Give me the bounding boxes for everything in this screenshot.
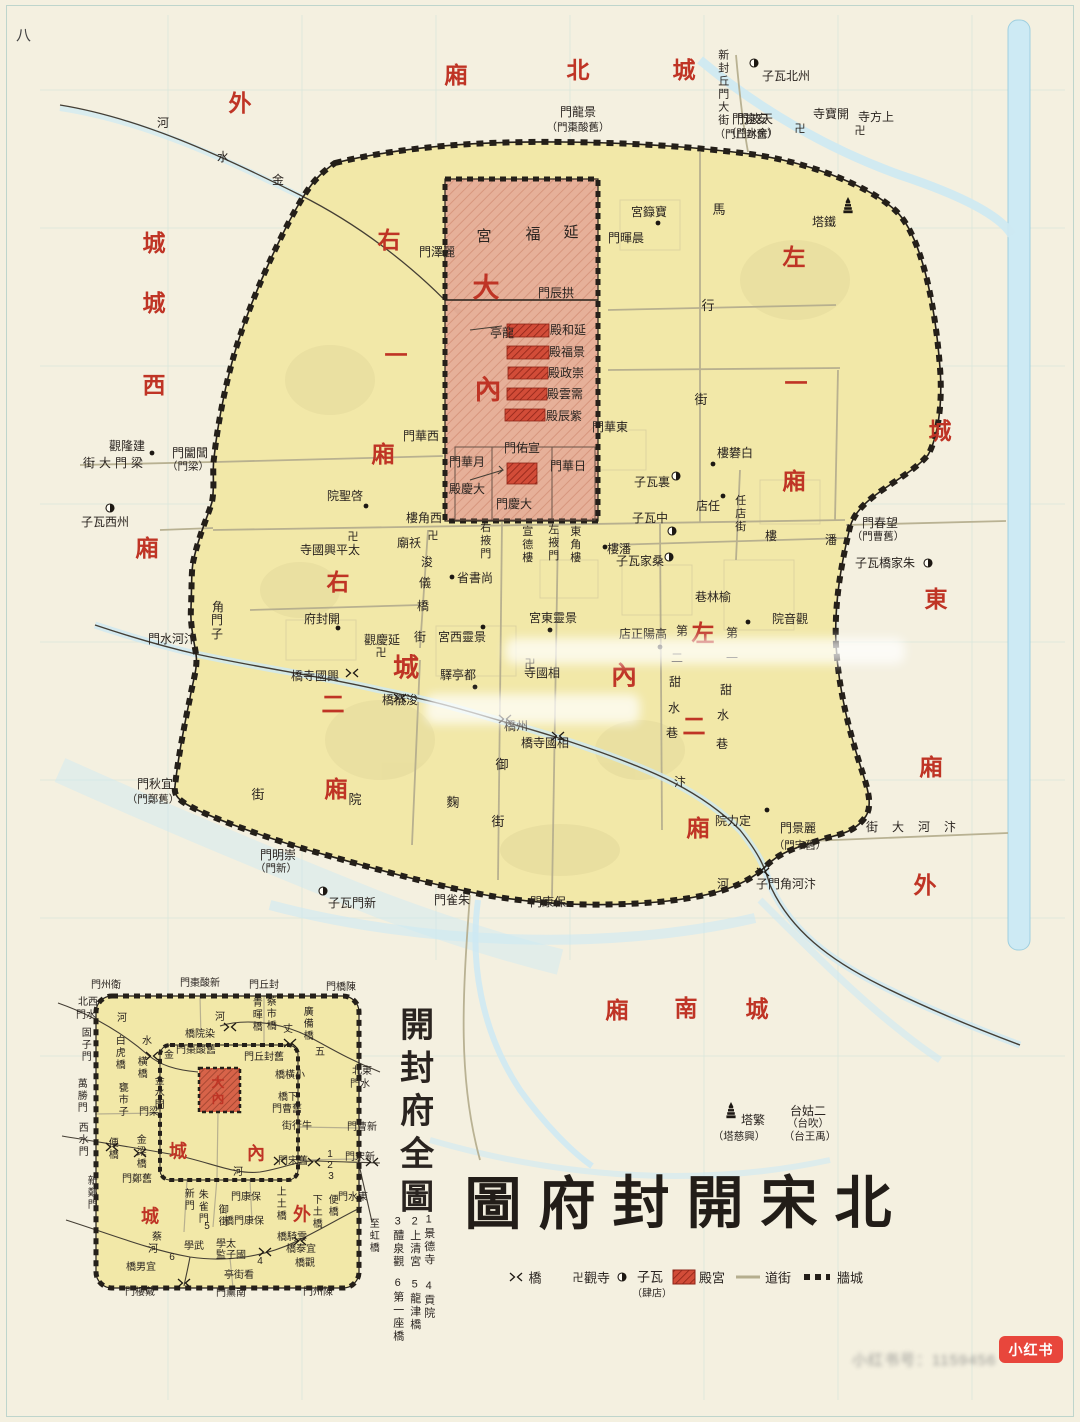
map-label: 樓 (765, 530, 777, 542)
legend-label: 觀寺 (584, 1268, 610, 1287)
map-label: 街大門梁 (83, 457, 147, 469)
map-label: 北 (835, 1174, 892, 1233)
svg-text:卍: 卍 (376, 646, 387, 659)
map-label: 內 (211, 1092, 224, 1106)
map-label: 城 (929, 420, 952, 444)
map-label: 白虎橋 (113, 1035, 123, 1071)
map-label: 寺國興平太 (300, 544, 360, 556)
legend-label: 橋 (528, 1268, 541, 1287)
map-label: 新封丘門大街 (716, 49, 727, 127)
map-label: 內 (611, 662, 637, 689)
map-label: 子瓦中 (632, 512, 668, 524)
map-label: 朱雀門 (196, 1189, 206, 1225)
map-label: 寺寶開 (813, 108, 849, 120)
map-label: 廂 (920, 756, 943, 780)
svg-text:卍: 卍 (573, 1271, 584, 1284)
map-label: 東 (925, 588, 948, 612)
map-label: 5 (204, 1222, 210, 1232)
map-label: 西水門 (76, 1122, 86, 1158)
map-label: 門遠安 (732, 113, 768, 125)
map-label: 內 (475, 376, 502, 404)
map-label: 街 (694, 393, 707, 407)
map-label: 門樓戴 (125, 1288, 155, 1298)
map-label: 廂 (687, 817, 710, 841)
map-label: 蔡市橋 (264, 996, 274, 1032)
map-label: 甜 (669, 676, 681, 688)
map-label: 河 (233, 1168, 243, 1178)
map-label: 橋儀浚 (382, 694, 418, 706)
svg-text:卍: 卍 (428, 529, 439, 542)
map-label: 門龍景 (560, 106, 596, 118)
map-label: 宋 (761, 1174, 818, 1233)
svg-text:卍: 卍 (855, 124, 866, 137)
map-label: 6 (169, 1253, 175, 1263)
map-label: 浚 (421, 556, 433, 568)
map-label: 廟祅 (397, 537, 421, 549)
map-label: 水 (668, 702, 680, 714)
map-label: 外 (229, 92, 252, 116)
map-label: 城 (169, 1143, 187, 1162)
map-label: 儀 (419, 577, 431, 589)
map-label: 門州陳 (303, 1288, 333, 1298)
map-label: 金 (164, 1051, 174, 1061)
map-label: （門新） (255, 864, 297, 875)
map-label: 門水 (350, 1080, 370, 1090)
map-label: 1 (327, 1150, 333, 1160)
map-label: 右 (378, 229, 401, 253)
map-label: 街行牛 (282, 1122, 312, 1132)
svg-text:卍: 卍 (795, 122, 806, 135)
map-label: 門秋宜 (137, 778, 173, 790)
map-label: 4貢院 (422, 1280, 433, 1320)
map-label: 金梁橋 (134, 1134, 144, 1170)
map-label: 水 (217, 151, 229, 163)
map-label: 便橋 (326, 1194, 336, 1218)
map-label: 河 (117, 1014, 127, 1024)
map-label: 圖 (465, 1175, 522, 1234)
map-label: 院 (348, 793, 361, 807)
map-label: 河 (215, 1013, 225, 1023)
map-label: 城 (393, 654, 419, 681)
map-label: 二 (683, 715, 706, 739)
map-label: 門辰拱 (538, 287, 574, 299)
map-label: 甕市子 (116, 1082, 126, 1118)
map-label: 丈 (283, 1025, 293, 1035)
map-label: 門州衛 (91, 981, 121, 991)
map-label: 大 (473, 274, 500, 302)
map-label: 角 (212, 601, 224, 613)
map-label: 開 (687, 1174, 744, 1233)
map-label: 廂 (606, 999, 629, 1023)
map-label: 橋騎雲 (277, 1233, 307, 1243)
map-label: 亭龍 (490, 327, 514, 339)
map-label: （門棗酸舊） (547, 123, 610, 134)
map-label: 2上清宮 (408, 1216, 419, 1269)
map-label: 樓礬白 (717, 447, 753, 459)
legend-sublabel: （肆店） (632, 1285, 672, 1300)
map-label: 院聖啓 (327, 490, 363, 502)
map-label: 門華西 (403, 430, 439, 442)
map-label: 金 (272, 174, 284, 186)
map-label: 學武 (184, 1242, 204, 1252)
map-label: 左掖門 (546, 524, 557, 563)
map-label: 學太 (216, 1240, 236, 1250)
map-page: 卍卍卍卍卍卍 卍 廂北城外城城西廂右一廂左一廂大內右二廂城內左二廂城東廂外廂南城… (0, 0, 1080, 1422)
map-label: 新門 (182, 1188, 192, 1212)
map-label: 城 (673, 59, 696, 83)
map-label: 福 (525, 227, 540, 243)
map-label: 子瓦裏 (634, 476, 670, 488)
map-label: 外 (293, 1206, 311, 1225)
map-label: 廣備橋 (301, 1006, 311, 1042)
map-label: 內 (247, 1145, 265, 1164)
map-label: 子瓦西州 (81, 516, 129, 528)
map-label: 街 (491, 815, 504, 829)
map-label: 至虹橋 (367, 1218, 377, 1254)
map-label: 觀隆建 (109, 440, 145, 452)
map-label: 殿福景 (549, 346, 585, 358)
map-label: 巷 (666, 727, 678, 739)
map-label: 門澤麗 (419, 246, 455, 258)
map-label: 金水門 (152, 1075, 162, 1111)
map-label: 外 (914, 874, 937, 898)
map-label: 延 (563, 225, 578, 241)
map-label: 橋男宜 (126, 1263, 156, 1273)
map-label: 一 (385, 344, 408, 368)
map-label: 五 (315, 1048, 325, 1058)
map-label: 門橋陳 (326, 983, 356, 993)
map-label: 子 (211, 628, 223, 640)
map-label: 水 (717, 709, 729, 721)
map-label: 橋橫小 (275, 1071, 305, 1081)
map-label: 門明崇 (260, 849, 296, 861)
map-label: 橋泰宜 (286, 1245, 316, 1255)
map-label: 門棗酸新 (180, 979, 220, 989)
map-label: 門華月 (449, 456, 485, 468)
map-label: 北東 (352, 1067, 372, 1077)
map-label: 塔繁 (741, 1114, 765, 1126)
map-label: 二 (322, 693, 345, 717)
map-label: 橋觀 (295, 1259, 315, 1269)
map-label: 4 (257, 1257, 263, 1267)
map-label: 門薰南 (216, 1289, 246, 1299)
map-label: 3 (328, 1172, 334, 1182)
map-label: 門暉晨 (608, 232, 644, 244)
map-label: 門丘封舊 (244, 1053, 284, 1063)
map-label: 門 (211, 614, 223, 626)
map-label: 門佑宣 (504, 442, 540, 454)
legend-label: 子瓦 (637, 1267, 663, 1286)
east-river (1008, 20, 1030, 950)
map-label: 樓角西 (406, 512, 442, 524)
map-label: 殿辰紫 (546, 410, 582, 422)
map-label: 橫橋 (135, 1056, 145, 1080)
legend-label: 殿宮 (699, 1268, 725, 1287)
map-label: 新鄭門 (85, 1175, 95, 1211)
map-label: 門棗酸舊 (176, 1046, 216, 1056)
map-label: 左 (783, 246, 806, 270)
map-label: 門慶大 (496, 498, 532, 510)
map-label: 廂 (783, 470, 806, 494)
legend-label: 牆城 (837, 1268, 863, 1287)
map-label: 寺方上 (858, 111, 894, 123)
map-label: （門曹舊） (852, 532, 905, 543)
map-label: 2 (327, 1161, 333, 1171)
map-label: 巷 (716, 738, 728, 750)
map-label: 門曹新 (347, 1123, 377, 1133)
map-label: （門梁） (167, 462, 209, 473)
map-label: 河 (717, 878, 729, 890)
map-label: 便橋 (106, 1137, 116, 1161)
map-label: 府 (539, 1175, 596, 1234)
map-label: 第 (676, 625, 688, 637)
map-label: 汴 (674, 776, 686, 788)
map-label: 潘 (825, 534, 837, 546)
map-label: 北西 (78, 998, 98, 1008)
map-label: 宮籙寶 (631, 206, 667, 218)
map-label: 橋 (417, 600, 429, 612)
map-label: 門華東 (592, 421, 628, 433)
map-label: 門康保 (530, 896, 566, 908)
page-number: 八 (16, 24, 31, 45)
map-label: 大 (211, 1076, 224, 1090)
map-label: 封 (613, 1174, 670, 1233)
map-label: 觀慶延 (364, 634, 400, 646)
map-label: 門水河汴 (148, 633, 196, 645)
map-label: 殿慶大 (449, 483, 485, 495)
map-label: 宮東靈景 (529, 612, 577, 624)
map-label: 門曹舊 (272, 1105, 302, 1115)
map-label: （台王禹） (784, 1132, 837, 1143)
map-label: 台姑二 (790, 1105, 826, 1117)
map-label: 店任 (696, 500, 720, 512)
legend-label: 道街 (765, 1268, 791, 1287)
map-label: 河 (157, 117, 169, 129)
map-label: 橋門康保 (224, 1217, 264, 1227)
map-label: 門梁 (139, 1108, 159, 1118)
map-label: 城 (141, 1208, 159, 1227)
svg-text:卍: 卍 (348, 530, 359, 543)
watermark-blur (505, 638, 905, 664)
map-label: 門宋新 (345, 1153, 375, 1163)
watermark-badge: 小红书 (999, 1336, 1063, 1363)
map-label: 門鄭舊 (122, 1175, 152, 1185)
map-label: 門雀朱 (434, 894, 470, 906)
map-label: 門華日 (550, 460, 586, 472)
map-label: 城 (746, 998, 769, 1022)
map-label: 宮 (476, 229, 491, 245)
map-label: 院音觀 (772, 613, 808, 625)
map-label: 城 (143, 232, 166, 256)
map-label: 門闔閶 (172, 447, 208, 459)
map-label: 廂 (325, 778, 348, 802)
map-label: 街 (414, 631, 426, 643)
map-label: （台吹） (787, 1119, 829, 1130)
map-label: 水 (142, 1037, 152, 1047)
map-label: 東角樓 (568, 526, 579, 565)
map-label: 門丘封 (249, 981, 279, 991)
map-label: 殿雲需 (547, 388, 583, 400)
map-label: 任店街 (733, 495, 744, 534)
map-label: 固子門 (79, 1027, 89, 1063)
map-label: 驛亭都 (440, 669, 476, 681)
map-label: 右 (327, 571, 350, 595)
map-label: 殿和延 (550, 324, 586, 336)
map-label: 街大河汴 (866, 821, 970, 833)
map-label: （門鄭舊） (127, 795, 180, 806)
map-label: 南 (675, 997, 698, 1021)
map-label: 子瓦橋家朱 (855, 557, 915, 569)
map-label: 3醴泉觀 (391, 1216, 402, 1269)
map-label: 橋寺國興 (291, 670, 339, 682)
watermark-text: 小红书号：1159456 (852, 1349, 996, 1370)
map-label: 亭街看 (224, 1271, 254, 1281)
map-label: 塔鐵 (812, 216, 836, 228)
map-label: 甜 (720, 684, 732, 696)
map-label: 院力定 (715, 815, 751, 827)
map-label: 宣德樓 (520, 526, 531, 565)
map-label: 廂 (445, 64, 468, 88)
map-label: 上土橋 (274, 1186, 284, 1222)
map-label: （門宋舊） (774, 841, 827, 852)
map-label: 門水 (76, 1011, 96, 1021)
map-label: 河 (148, 1245, 158, 1255)
map-label: 5龍津橋 (408, 1279, 419, 1332)
map-label: 子瓦北州 (762, 70, 810, 82)
map-label: 門宋舊 (278, 1157, 308, 1167)
map-label: 北 (567, 59, 590, 83)
map-label: 監子國 (216, 1251, 246, 1261)
map-label: 門水東 (338, 1193, 368, 1203)
map-label: 行 (701, 299, 714, 313)
map-label: 蔡 (152, 1233, 162, 1243)
map-label: 萬勝門 (75, 1078, 85, 1114)
map-label: 西 (143, 374, 166, 398)
map-label: 子門角河汴 (756, 878, 816, 890)
map-label: 殿政崇 (548, 367, 584, 379)
map-label: 麴 (446, 796, 459, 810)
map-label: 青暉橋 (250, 997, 260, 1033)
map-label: 門春望 (862, 517, 898, 529)
map-label: 下土橋 (310, 1194, 320, 1230)
map-label: （塔慈興） (713, 1132, 766, 1143)
map-label: （門丘封舊） (715, 130, 778, 141)
map-label: 橋院染 (185, 1030, 215, 1040)
map-label: 馬 (712, 203, 725, 217)
map-label: 御 (495, 758, 508, 772)
map-label: 子瓦家桑 (616, 555, 664, 567)
map-label: 一 (785, 372, 808, 396)
map-label: 府封開 (304, 613, 340, 625)
inset-title: 開封府全圖 (395, 1007, 430, 1222)
map-label: 省書尚 (457, 572, 493, 584)
map-label: 廂 (136, 537, 159, 561)
map-label: 廂 (372, 443, 395, 467)
map-label: 6第一座橋 (391, 1277, 402, 1343)
map-label: 宮西靈景 (438, 631, 486, 643)
watermark-blur (425, 694, 640, 724)
map-label: 右掖門 (478, 522, 489, 561)
map-label: 橋下 (278, 1093, 298, 1103)
map-label: 街 (251, 788, 264, 802)
map-label: 橋寺國相 (521, 737, 569, 749)
map-label: 門景麗 (780, 822, 816, 834)
map-label: 門康保 (231, 1193, 261, 1203)
map-label: 巷林榆 (695, 591, 731, 603)
map-label: 寺國相 (524, 667, 560, 679)
map-label: 子瓦門新 (328, 897, 376, 909)
map-label: 城 (143, 292, 166, 316)
